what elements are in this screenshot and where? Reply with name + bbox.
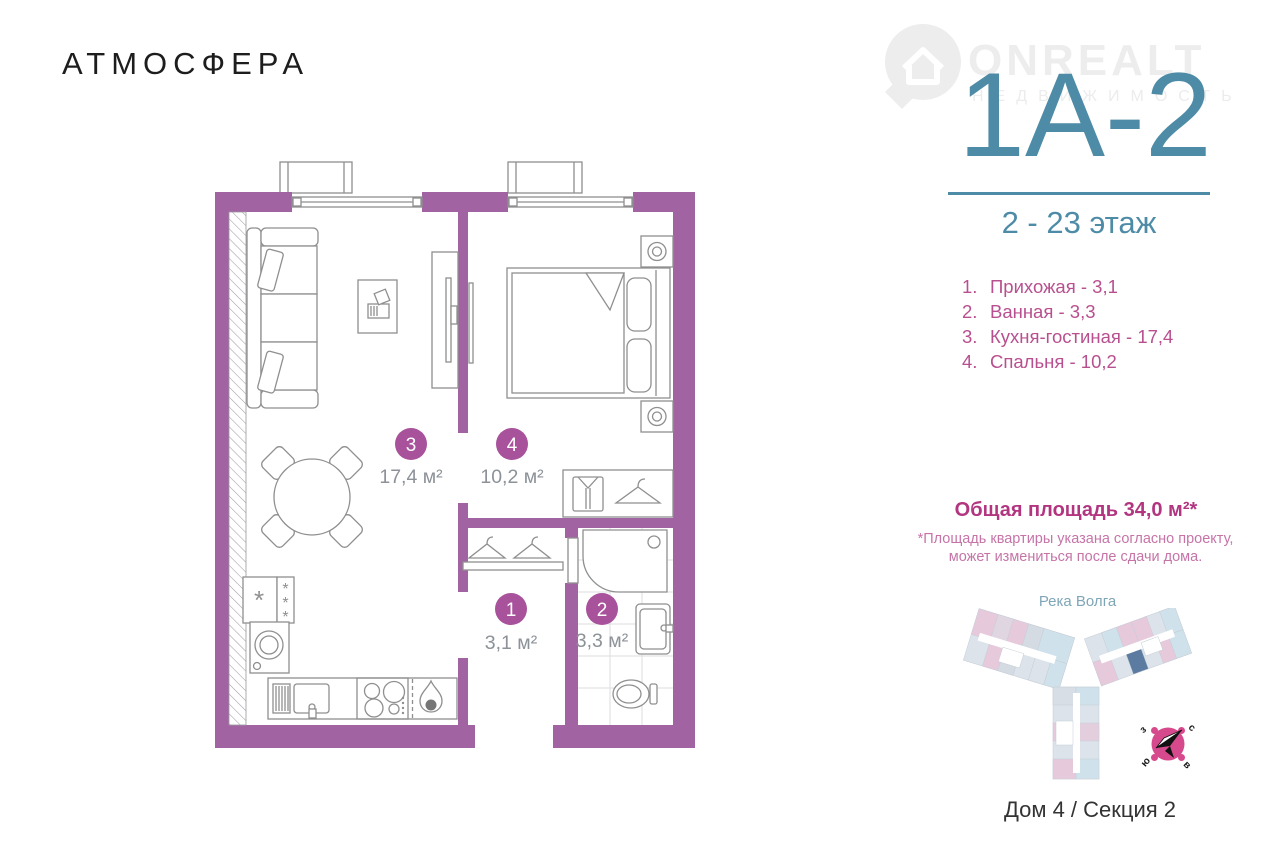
- toilet: [613, 680, 657, 708]
- room-list-item: 4. Спальня - 10,2: [962, 349, 1173, 374]
- total-area-title: Общая площадь 34,0 м²*: [930, 499, 1222, 522]
- shower: [583, 530, 667, 592]
- room-label: Прихожая - 3,1: [990, 274, 1118, 299]
- room-badge-3: 3 17,4 м²: [379, 428, 443, 488]
- room-label: Спальня - 10,2: [990, 349, 1117, 374]
- fridge: * * * *: [243, 577, 294, 626]
- floorplan: * * * *: [200, 140, 720, 770]
- page: АТМОСФЕРА ONREALT НЕДВИЖИМОСТЬ 1А-2 2 - …: [0, 0, 1280, 855]
- room-number: 4.: [962, 349, 990, 374]
- room-area-label: 10,2 м²: [480, 466, 544, 488]
- bathroom-sink: [636, 604, 673, 654]
- room-area-label: 3,3 м²: [576, 630, 629, 652]
- svg-text:2: 2: [597, 600, 608, 621]
- building-right: [1084, 608, 1191, 686]
- balcony: [280, 162, 582, 193]
- room-list-item: 3. Кухня-гостиная - 17,4: [962, 324, 1173, 349]
- room-badge-4: 4 10,2 м²: [480, 428, 544, 488]
- compass-icon: з с ю в: [1138, 722, 1198, 771]
- unit-floors: 2 - 23 этаж: [948, 205, 1210, 241]
- room-number: 2.: [962, 299, 990, 324]
- room-list: 1. Прихожая - 3,1 2. Ванная - 3,3 3. Кух…: [962, 274, 1173, 374]
- unit-code-underline: [948, 192, 1210, 195]
- room-badge-1: 1 3,1 м²: [485, 593, 538, 654]
- wall-hatch: [229, 212, 246, 725]
- room-area-label: 17,4 м²: [379, 466, 443, 488]
- room-list-item: 2. Ванная - 3,3: [962, 299, 1173, 324]
- building-bottom: [1053, 687, 1099, 779]
- room-label: Ванная - 3,3: [990, 299, 1096, 324]
- site-caption: Дом 4 / Секция 2: [960, 797, 1220, 823]
- wardrobe: [563, 470, 673, 517]
- note-line-1: *Площадь квартиры указана согласно проек…: [903, 531, 1248, 549]
- total-area-note: *Площадь квартиры указана согласно проек…: [903, 531, 1248, 566]
- desk: [358, 280, 397, 333]
- unit-code: 1А-2: [945, 52, 1225, 178]
- room-number: 1.: [962, 274, 990, 299]
- hanger-rack: [463, 537, 563, 570]
- svg-text:3: 3: [406, 435, 417, 456]
- svg-text:*: *: [254, 585, 264, 615]
- compass-letter: в: [1181, 759, 1193, 771]
- room-number: 3.: [962, 324, 990, 349]
- dining-table: [274, 459, 350, 535]
- room-badge-2: 2 3,3 м²: [576, 593, 629, 652]
- washing-machine: [250, 622, 289, 673]
- svg-text:1: 1: [506, 600, 517, 621]
- room-label: Кухня-гостиная - 17,4: [990, 324, 1173, 349]
- building-left: [963, 609, 1074, 690]
- bed: [507, 268, 670, 398]
- compass-letter: з: [1138, 724, 1149, 736]
- bathroom-door: [568, 538, 578, 583]
- sofa: [247, 228, 318, 408]
- room-area-label: 3,1 м²: [485, 632, 538, 654]
- compass-letter: с: [1186, 722, 1198, 734]
- room-list-item: 1. Прихожая - 3,1: [962, 274, 1173, 299]
- note-line-2: может измениться после сдачи дома.: [903, 549, 1248, 567]
- svg-text:4: 4: [507, 435, 518, 456]
- brand-logo: АТМОСФЕРА: [62, 46, 309, 82]
- site-plan: з с ю в: [950, 608, 1215, 793]
